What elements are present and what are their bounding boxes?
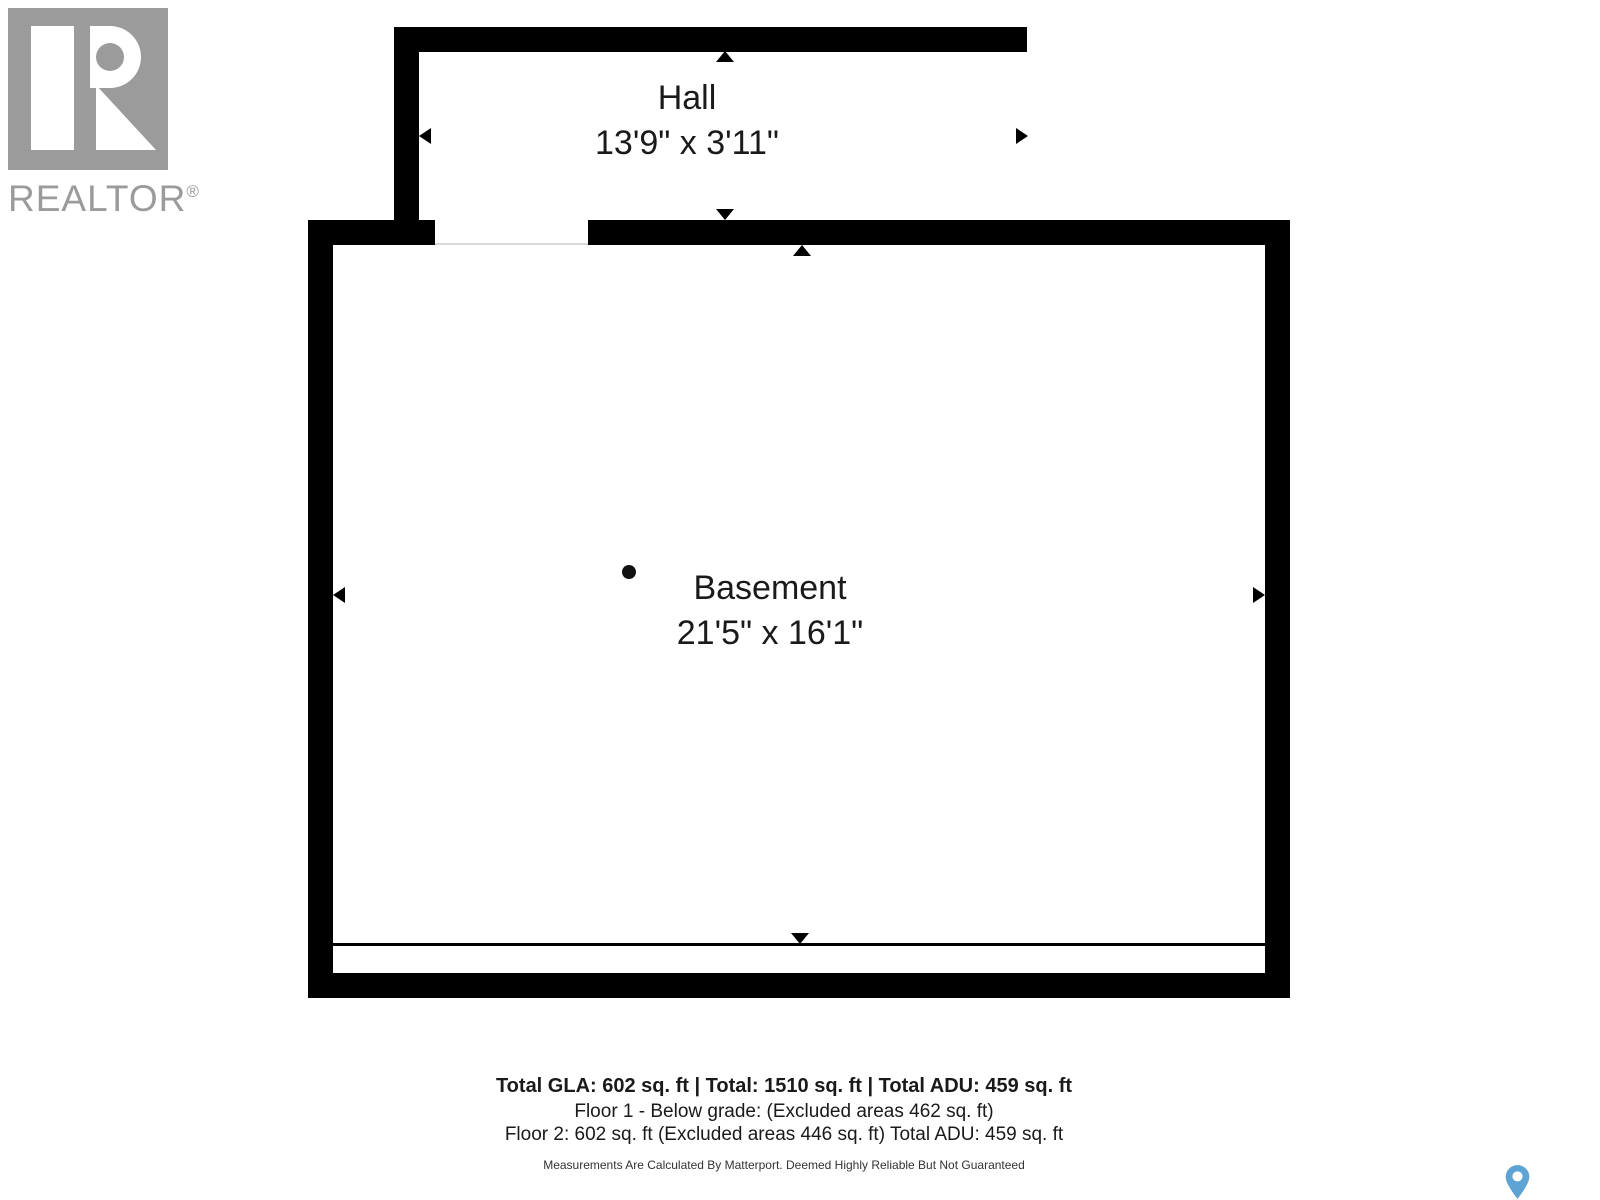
hall-wall-top: [394, 27, 1027, 52]
hall-room-name: Hall: [595, 76, 779, 121]
hall-arrow-up-icon: [716, 51, 734, 62]
registered-trademark-icon: ®: [186, 182, 199, 201]
basement-wall-right: [1265, 220, 1290, 998]
basement-arrow-down-icon: [791, 933, 809, 944]
floor1-summary: Floor 1 - Below grade: (Excluded areas 4…: [0, 1100, 1568, 1123]
basement-arrow-up-icon: [793, 245, 811, 256]
hall-arrow-down-icon: [716, 209, 734, 220]
basement-room-dimensions: 21'5" x 16'1": [677, 611, 863, 656]
realtor-logo-text: REALTOR®: [8, 180, 178, 217]
basement-label: Basement 21'5" x 16'1": [677, 566, 863, 656]
hall-wall-left: [394, 27, 419, 220]
basement-room-name: Basement: [677, 566, 863, 611]
basement-wall-top-right-segment: [588, 220, 1290, 245]
map-pin-icon: [1504, 1164, 1531, 1200]
doorway-opening-line: [435, 243, 588, 245]
basement-wall-left: [308, 220, 333, 998]
floorplan-page: REALTOR® Hall 13'9" x 3'11" Basement 21'…: [0, 0, 1600, 1200]
floor2-summary: Floor 2: 602 sq. ft (Excluded areas 446 …: [0, 1123, 1568, 1146]
hall-label: Hall 13'9" x 3'11": [595, 76, 779, 166]
basement-arrow-left-icon: [333, 587, 345, 603]
realtor-logo: REALTOR®: [8, 8, 178, 217]
hall-arrow-left-icon: [419, 128, 431, 144]
hall-room-dimensions: 13'9" x 3'11": [595, 121, 779, 166]
hall-arrow-right-icon: [1016, 128, 1028, 144]
basement-arrow-right-icon: [1253, 587, 1265, 603]
measurement-disclaimer: Measurements Are Calculated By Matterpor…: [0, 1158, 1568, 1173]
realtor-wordmark: REALTOR: [8, 178, 186, 219]
total-area-summary: Total GLA: 602 sq. ft | Total: 1510 sq. …: [0, 1074, 1568, 1098]
camera-position-dot: [622, 565, 636, 579]
realtor-r-icon: [8, 8, 168, 170]
basement-wall-bottom: [308, 973, 1290, 998]
